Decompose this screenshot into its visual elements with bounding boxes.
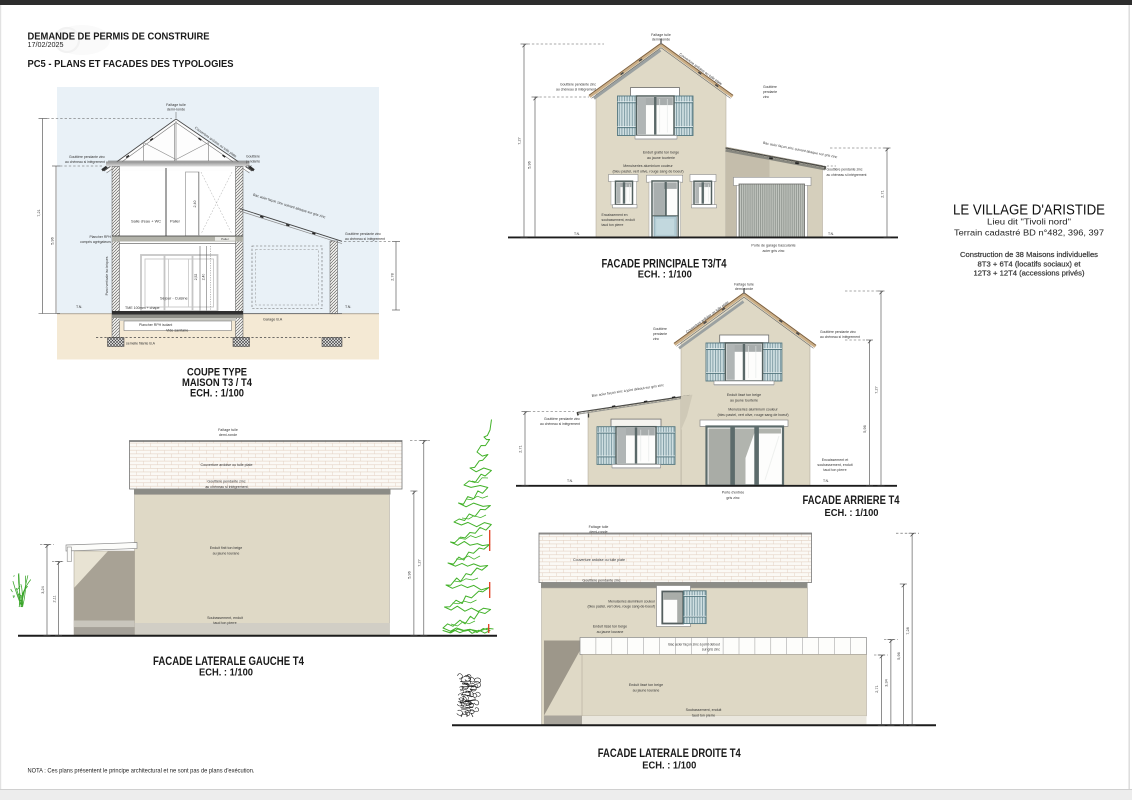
svg-text:5,96: 5,96 [51, 237, 55, 244]
svg-text:Gouttière pendante zinc: Gouttière pendante zinc [582, 578, 620, 582]
svg-text:Construction de 38 Maisons ind: Construction de 38 Maisons individuelles [960, 250, 1098, 259]
svg-text:ECH. : 1/100: ECH. : 1/100 [642, 760, 696, 771]
svg-text:taud ton pierre: taud ton pierre [823, 468, 846, 472]
svg-text:Couverture ardoise ou tuile pl: Couverture ardoise ou tuile plate [201, 463, 253, 467]
svg-text:Palier: Palier [221, 237, 229, 241]
svg-text:T.N.: T.N. [823, 479, 829, 483]
svg-text:zinc: zinc [653, 337, 659, 341]
svg-text:acier gris zinc: acier gris zinc [763, 249, 785, 253]
svg-text:au chéneau si intégrement: au chéneau si intégrement [205, 485, 247, 489]
svg-text:Gouttière pendante zinc: Gouttière pendante zinc [560, 83, 596, 87]
svg-text:zinc: zinc [246, 165, 252, 169]
svg-text:7,21: 7,21 [37, 209, 41, 216]
svg-text:ECH. : 1/100: ECH. : 1/100 [638, 269, 692, 280]
svg-text:5,96: 5,96 [897, 652, 901, 659]
svg-text:FACADE ARRIERE T4: FACADE ARRIERE T4 [803, 493, 900, 507]
svg-text:7,27: 7,27 [875, 386, 879, 393]
svg-text:7,28: 7,28 [906, 627, 910, 634]
svg-text:3,24: 3,24 [41, 586, 45, 593]
svg-text:Gouttière pendante zinc: Gouttière pendante zinc [345, 232, 381, 236]
svg-text:sur gris zinc: sur gris zinc [702, 648, 720, 652]
svg-text:5,96: 5,96 [863, 425, 867, 432]
svg-text:Encaissement et: Encaissement et [822, 458, 849, 462]
svg-text:PC5 - PLANS ET FACADES DES TYP: PC5 - PLANS ET FACADES DES TYPOLOGIES [28, 59, 234, 70]
svg-text:(bleu pastel, vert olive, roug: (bleu pastel, vert olive, rouge sang de … [717, 413, 788, 417]
svg-text:LE VILLAGE D'ARISTIDE: LE VILLAGE D'ARISTIDE [953, 203, 1105, 219]
svg-text:3,34: 3,34 [885, 679, 889, 686]
svg-text:FACADE LATERALE DROITE T4: FACADE LATERALE DROITE T4 [598, 746, 741, 760]
svg-text:Paroi verticale iso briques: Paroi verticale iso briques [105, 256, 109, 295]
svg-text:12T3 + 12T4 (accessions privés: 12T3 + 12T4 (accessions privés) [974, 268, 1086, 277]
svg-text:Gouttière pendante zinc: Gouttière pendante zinc [544, 417, 580, 421]
svg-text:Faîtage tuile: Faîtage tuile [166, 103, 186, 107]
svg-text:taud ton pierre: taud ton pierre [213, 621, 236, 625]
svg-text:Enduit lissé ton beige: Enduit lissé ton beige [727, 393, 761, 397]
svg-text:Faîtage tuile: Faîtage tuile [589, 525, 609, 529]
svg-text:au jaune lourane: au jaune lourane [213, 551, 240, 555]
svg-text:Faîtage tuile: Faîtage tuile [218, 428, 238, 432]
svg-text:demi-ronde: demi-ronde [219, 433, 237, 437]
svg-text:2,40: 2,40 [202, 274, 206, 281]
svg-text:NOTA : Ces plans présentent le: NOTA : Ces plans présentent le principe … [28, 769, 255, 775]
svg-text:2,78: 2,78 [391, 273, 395, 280]
svg-text:Enduit lissé ton beige: Enduit lissé ton beige [629, 683, 663, 687]
svg-text:soubassement, enduit: soubassement, enduit [602, 218, 635, 222]
svg-text:Faîtage tuile: Faîtage tuile [734, 283, 754, 287]
svg-text:Menuiseries aluminium couleur: Menuiseries aluminium couleur [623, 164, 673, 168]
svg-text:FACADE LATERALE GAUCHE T4: FACADE LATERALE GAUCHE T4 [153, 654, 304, 668]
svg-text:Couverture ardoise ou tuile pl: Couverture ardoise ou tuile plate [573, 558, 625, 562]
svg-text:pendante: pendante [763, 90, 777, 94]
svg-text:T.N.: T.N. [76, 305, 82, 309]
svg-text:pendante: pendante [653, 332, 667, 336]
svg-text:pendante: pendante [246, 160, 260, 164]
svg-text:Terrain cadastré BD n°482, 396: Terrain cadastré BD n°482, 396, 397 [954, 228, 1104, 237]
svg-text:T.N.: T.N. [828, 232, 834, 236]
svg-text:soubassement, enduit: soubassement, enduit [817, 463, 852, 467]
svg-text:2,11: 2,11 [52, 595, 56, 602]
svg-text:au chéneau si intégrement: au chéneau si intégrement [827, 173, 867, 177]
svg-text:Vide sanitaire: Vide sanitaire [166, 329, 188, 333]
svg-text:Gouttière: Gouttière [763, 85, 777, 89]
svg-text:au jaune tourterie: au jaune tourterie [730, 398, 758, 402]
svg-text:semelle filante B.A: semelle filante B.A [126, 342, 156, 346]
svg-text:zinc: zinc [763, 95, 769, 99]
svg-text:8T3 + 6T4 (locatifs sociaux) e: 8T3 + 6T4 (locatifs sociaux) et [978, 260, 1082, 269]
svg-text:Enduit gratté ton beige: Enduit gratté ton beige [643, 151, 679, 155]
svg-text:au chéneau si intégrement: au chéneau si intégrement [345, 237, 385, 241]
svg-text:5,96: 5,96 [408, 571, 412, 578]
svg-text:Gouttière: Gouttière [653, 327, 667, 331]
svg-text:T.N.: T.N. [567, 479, 573, 483]
svg-text:Gouttière pendante zinc: Gouttière pendante zinc [820, 330, 856, 334]
svg-text:gris zinc: gris zinc [726, 496, 739, 500]
svg-text:taud ton pierre: taud ton pierre [602, 223, 624, 227]
svg-text:FACADE PRINCIPALE T3/T4: FACADE PRINCIPALE T3/T4 [602, 257, 727, 271]
svg-text:Porte de garage basculante: Porte de garage basculante [751, 244, 795, 248]
svg-text:Gouttière: Gouttière [246, 155, 260, 159]
svg-text:7,27: 7,27 [518, 137, 522, 144]
svg-text:5,96: 5,96 [528, 161, 532, 168]
svg-text:Menuiseries aluminium couleur: Menuiseries aluminium couleur [728, 408, 778, 412]
svg-text:17/02/2025: 17/02/2025 [28, 40, 64, 49]
svg-text:2,71: 2,71 [875, 685, 879, 692]
svg-text:TME 100mm + chape: TME 100mm + chape [125, 306, 159, 310]
svg-text:7,27: 7,27 [418, 559, 422, 566]
svg-text:au jaune tourterie: au jaune tourterie [647, 156, 675, 160]
svg-text:Palier: Palier [170, 219, 181, 224]
svg-text:Séjour - Cuisine: Séjour - Cuisine [160, 296, 188, 301]
svg-text:Bac acier façon zinc à joint d: Bac acier façon zinc à joint debout [668, 643, 720, 647]
svg-text:au chéneau si intégrement: au chéneau si intégrement [556, 88, 596, 92]
svg-text:Soubassement, enduit: Soubassement, enduit [207, 616, 243, 620]
svg-text:au jaune lourane: au jaune lourane [597, 630, 624, 634]
svg-text:demi-ronde: demi-ronde [735, 287, 753, 291]
svg-text:Gouttière pendante zinc: Gouttière pendante zinc [207, 480, 245, 484]
svg-text:au chéneau si intégrement: au chéneau si intégrement [820, 335, 860, 339]
svg-text:Porte d'entrée: Porte d'entrée [722, 491, 744, 495]
svg-text:2,71: 2,71 [881, 190, 885, 197]
svg-text:compris agrégateurs: compris agrégateurs [80, 240, 111, 244]
svg-text:Gouttière pendante zinc: Gouttière pendante zinc [827, 168, 863, 172]
svg-text:Enduit finit ton beige: Enduit finit ton beige [210, 546, 243, 550]
svg-text:Gouttière pendante zinc: Gouttière pendante zinc [69, 155, 105, 159]
svg-text:Lieu dit "Tivoli nord": Lieu dit "Tivoli nord" [987, 218, 1071, 227]
svg-text:demi-ronde: demi-ronde [652, 38, 670, 42]
svg-text:ECH. : 1/100: ECH. : 1/100 [190, 388, 244, 400]
svg-text:2,40: 2,40 [193, 201, 197, 208]
svg-text:ECH. : 1/100: ECH. : 1/100 [199, 667, 253, 678]
svg-text:Garage B.A: Garage B.A [263, 318, 283, 322]
svg-text:(bleu pastel, vert olive, roug: (bleu pastel, vert olive, rouge sang-de-… [588, 605, 655, 609]
svg-text:au chéneau si intégrement: au chéneau si intégrement [65, 160, 105, 164]
svg-text:au jaune lourane: au jaune lourane [633, 688, 660, 692]
svg-text:T.N.: T.N. [345, 305, 351, 309]
svg-text:T.N.: T.N. [574, 232, 580, 236]
svg-text:Salle d'eau + WC: Salle d'eau + WC [131, 219, 161, 224]
svg-text:Faîtage tuile: Faîtage tuile [651, 33, 671, 37]
svg-text:(bleu pastel, vert olive, roug: (bleu pastel, vert olive, rouge sang de … [612, 169, 683, 173]
svg-text:ECH. : 1/100: ECH. : 1/100 [825, 508, 879, 519]
svg-text:demi-ronde: demi-ronde [167, 108, 185, 112]
svg-text:Menuiseries aluminium couleur: Menuiseries aluminium couleur [608, 600, 656, 604]
svg-text:taud ton pierre: taud ton pierre [692, 713, 715, 717]
svg-text:Plancher RPH isolant: Plancher RPH isolant [139, 323, 172, 327]
svg-text:2,52: 2,52 [194, 274, 198, 281]
svg-text:Enduit lissé ton beige: Enduit lissé ton beige [593, 625, 627, 629]
svg-text:Plancher RPH: Plancher RPH [90, 235, 112, 239]
svg-text:Encaissement en: Encaissement en [602, 213, 628, 217]
svg-text:2,71: 2,71 [519, 445, 523, 452]
svg-text:au chéneau si intégrement: au chéneau si intégrement [540, 422, 580, 426]
svg-text:Soubassement, enduit: Soubassement, enduit [686, 708, 722, 712]
svg-text:demi-ronde: demi-ronde [589, 530, 607, 534]
